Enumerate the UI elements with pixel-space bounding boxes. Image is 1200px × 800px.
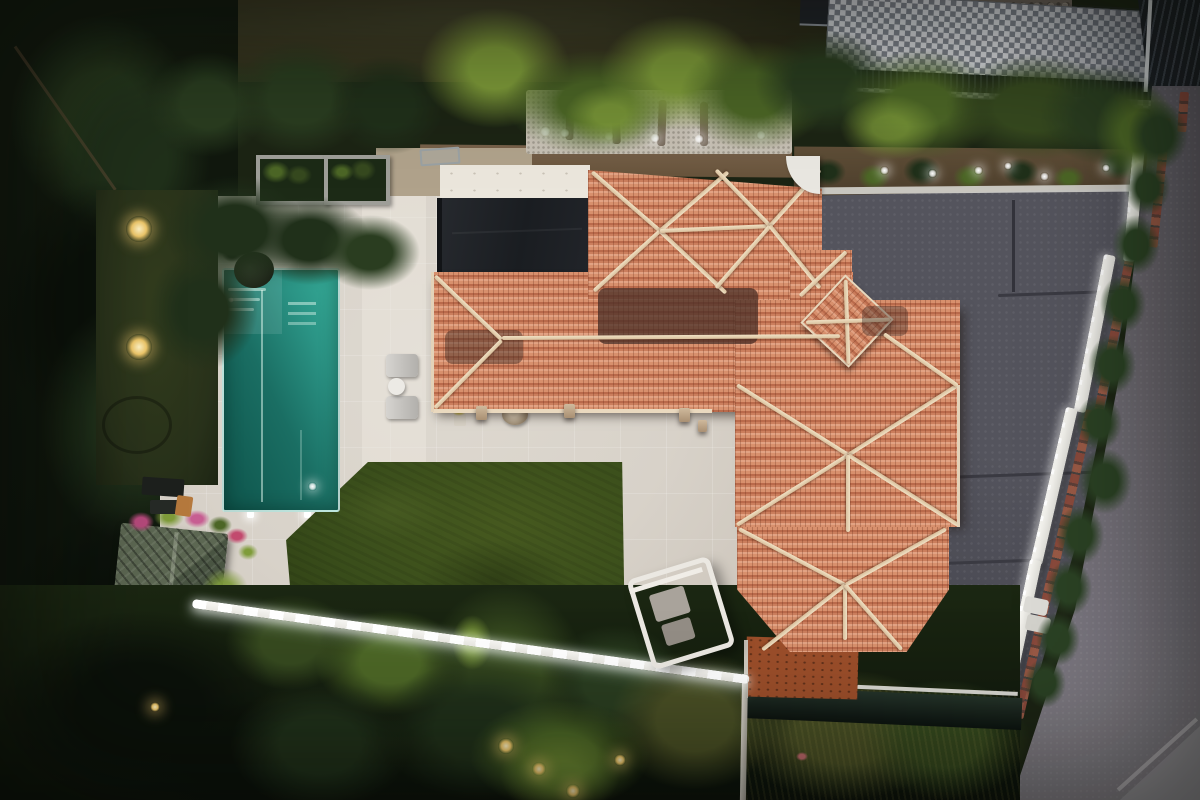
wall-hedge (1125, 160, 1170, 215)
flower-planter (128, 512, 154, 532)
porch-pillar (564, 404, 575, 418)
pool-lane-line (261, 290, 263, 502)
roof-fascia (431, 272, 434, 412)
deck-light (304, 511, 311, 518)
tree-overhang (148, 250, 258, 370)
vegetation-blob (230, 680, 410, 800)
porch-pillar (679, 408, 690, 422)
wall-hedge (1056, 505, 1104, 565)
warm-garden-light (566, 784, 580, 798)
palm-frond (565, 85, 655, 145)
wall-hedge (1046, 560, 1092, 616)
wall-hedge (1100, 275, 1146, 333)
sun-lounger (386, 396, 418, 419)
planter-shrub (350, 159, 376, 181)
wall-hedge (1076, 395, 1122, 451)
side-table (388, 378, 405, 395)
wall-hedge (1024, 658, 1066, 708)
wall-hedge (1128, 100, 1188, 170)
planter-shrub (286, 165, 312, 185)
driveway-joint (1012, 200, 1015, 292)
wall-hedge (1112, 215, 1160, 275)
porch-pillar (476, 406, 487, 420)
sun-lounger (386, 354, 418, 377)
warm-garden-light (150, 702, 160, 712)
palm-frond (840, 95, 940, 160)
roof-ridge (843, 585, 847, 640)
canopy-edge (437, 198, 442, 272)
black-canopy (440, 198, 590, 272)
pool-ladder (288, 322, 316, 325)
pool-light (308, 482, 317, 491)
garden-uplight (974, 166, 983, 175)
roof-dark-patch (862, 306, 908, 336)
roof-ridge (846, 455, 850, 532)
deck-light (247, 511, 254, 518)
garden-uplight (928, 169, 937, 178)
roof-top-wing (588, 166, 822, 300)
warm-garden-light (532, 762, 546, 776)
flat-roof (440, 165, 590, 202)
garden-uplight (880, 166, 889, 175)
pool-ladder (288, 302, 316, 305)
lawn-ring-mark (102, 396, 172, 454)
pool-lane-line (300, 430, 302, 500)
wooden-chair (175, 495, 194, 517)
wall-hedge (1078, 448, 1132, 514)
warm-garden-light (614, 754, 626, 766)
wall-hedge (1088, 335, 1136, 395)
lawn-patch (330, 480, 450, 540)
flower-planter (238, 544, 258, 560)
garden-lantern (126, 216, 152, 242)
warm-garden-light (498, 738, 514, 754)
garden-lantern (126, 334, 152, 360)
swing-cushion (661, 617, 696, 647)
roof-fascia (957, 385, 960, 527)
gravel-uplight (694, 134, 704, 144)
garden-uplight (1040, 172, 1049, 181)
pool-ladder (288, 312, 316, 315)
porch-pillar (698, 420, 707, 432)
flower-planter (226, 528, 248, 544)
aerial-photo-scene (0, 0, 1200, 800)
pink-item (796, 752, 808, 761)
tree-overhang (320, 215, 420, 290)
grey-bench (419, 147, 460, 167)
garden-uplight (1004, 162, 1012, 170)
